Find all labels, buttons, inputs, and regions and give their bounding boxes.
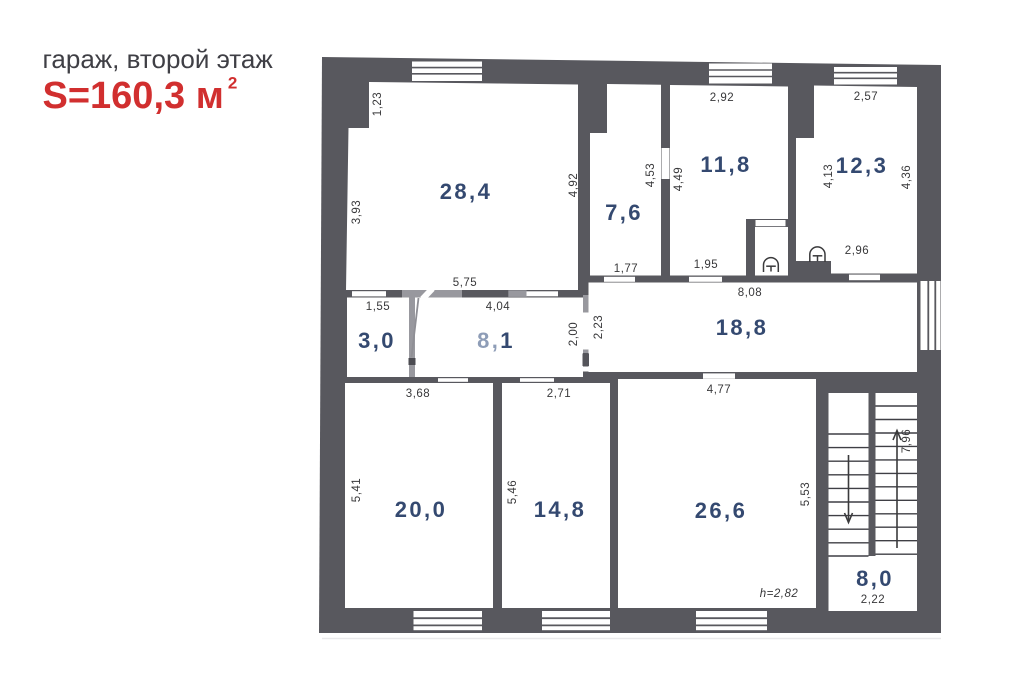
svg-text:1,77: 1,77	[614, 263, 638, 275]
svg-text:5,53: 5,53	[800, 482, 812, 506]
svg-text:2,92: 2,92	[710, 92, 734, 104]
svg-text:4,53: 4,53	[645, 163, 657, 187]
svg-text:18,8: 18,8	[716, 315, 768, 340]
svg-text:гараж, второй этаж: гараж, второй этаж	[43, 44, 274, 74]
svg-text:26,6: 26,6	[695, 498, 747, 523]
svg-text:1,55: 1,55	[366, 301, 390, 313]
svg-text:7,6: 7,6	[605, 200, 643, 225]
svg-text:5,75: 5,75	[453, 277, 477, 289]
svg-text:2,00: 2,00	[568, 322, 580, 346]
svg-text:h=2,82: h=2,82	[760, 588, 799, 600]
svg-text:4,77: 4,77	[707, 384, 731, 396]
svg-text:11,8: 11,8	[700, 152, 751, 177]
svg-text:14,8: 14,8	[534, 497, 586, 522]
svg-text:4,36: 4,36	[901, 165, 913, 189]
svg-text:2,22: 2,22	[861, 594, 885, 606]
svg-text:1,95: 1,95	[694, 259, 718, 271]
svg-text:4,49: 4,49	[673, 167, 685, 191]
svg-text:28,4: 28,4	[440, 179, 492, 204]
svg-text:2,96: 2,96	[845, 245, 869, 257]
svg-text:5,46: 5,46	[507, 480, 519, 504]
svg-text:8,0: 8,0	[856, 566, 894, 591]
svg-text:7,96: 7,96	[901, 429, 913, 453]
svg-text:1,23: 1,23	[372, 92, 384, 116]
svg-text:3,93: 3,93	[351, 200, 363, 224]
svg-text:20,0: 20,0	[395, 497, 447, 522]
svg-text:2,23: 2,23	[593, 315, 605, 339]
svg-text:5,41: 5,41	[351, 478, 363, 502]
svg-text:2,57: 2,57	[854, 91, 878, 103]
svg-text:12,3: 12,3	[836, 153, 888, 178]
svg-text:3,68: 3,68	[406, 388, 430, 400]
svg-text:4,13: 4,13	[823, 164, 835, 188]
svg-text:4,04: 4,04	[486, 301, 510, 313]
svg-text:3,0: 3,0	[358, 328, 396, 353]
svg-text:4,92: 4,92	[568, 173, 580, 197]
svg-text:8,1: 8,1	[477, 328, 515, 353]
svg-text:S=160,3 м2: S=160,3 м2	[43, 74, 238, 118]
svg-text:8,08: 8,08	[738, 287, 762, 299]
svg-text:2,71: 2,71	[547, 388, 571, 400]
